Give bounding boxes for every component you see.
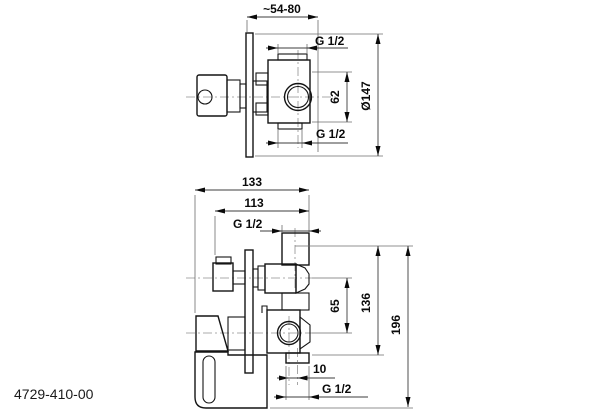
- dimension-thread-top: G 1/2: [233, 217, 321, 234]
- side-view-drawing: ~54-80 G 1/2 62 Ø147: [186, 2, 383, 157]
- diverter-knob: [213, 263, 233, 291]
- upper-body-chamfer: [296, 264, 309, 293]
- flange-tab-bottom: [256, 103, 268, 115]
- lever-cartridge: [228, 317, 245, 350]
- dimension-valve-spacing: 65: [312, 278, 352, 333]
- diverter-stem: [233, 271, 245, 284]
- dimension-depth: ~54-80: [247, 2, 318, 32]
- mixer-valve-dimension-drawing: ~54-80 G 1/2 62 Ø147: [0, 0, 614, 415]
- product-code: 4729-410-00: [14, 386, 94, 402]
- body-hook-detail: [262, 306, 267, 313]
- width-inner-label: 113: [244, 196, 264, 210]
- upper-valve-body: [265, 264, 296, 293]
- top-port-boss: [282, 233, 309, 265]
- front-view-drawing: 133 113 G 1/2 65: [186, 175, 413, 408]
- technical-drawing-page: ~54-80 G 1/2 62 Ø147: [0, 0, 614, 415]
- lower-valve-body: [267, 310, 300, 353]
- cartridge-step-1: [227, 80, 240, 112]
- dimension-thread-bottom: G 1/2: [266, 127, 348, 148]
- manifold-pipe: [282, 293, 309, 310]
- thread-bottom-label: G 1/2: [322, 382, 352, 396]
- port-spacing-label: 62: [328, 90, 342, 104]
- outlet-offset-label: 10: [313, 362, 327, 376]
- thread-bottom-label: G 1/2: [316, 127, 346, 141]
- valve-sleeve: [253, 81, 267, 112]
- height-inner-label: 136: [359, 293, 373, 313]
- lever-blade: [195, 352, 267, 408]
- width-total-label: 133: [242, 175, 262, 189]
- thread-top-label: G 1/2: [233, 217, 263, 231]
- dimension-height-inner: 136: [295, 246, 413, 355]
- lever-head: [196, 316, 228, 351]
- plate-diameter-label: Ø147: [359, 81, 373, 111]
- cartridge-step-2: [240, 84, 246, 108]
- depth-label: ~54-80: [263, 2, 301, 16]
- thread-top-label: G 1/2: [315, 34, 345, 48]
- cover-plate: [246, 33, 253, 157]
- height-total-label: 196: [389, 315, 403, 335]
- dimension-thread-top: G 1/2: [266, 34, 348, 54]
- flange-tab-top: [256, 73, 268, 85]
- top-port-stub: [278, 54, 307, 60]
- valve-spacing-label: 65: [328, 299, 342, 313]
- lever-blade-edge: [203, 356, 215, 403]
